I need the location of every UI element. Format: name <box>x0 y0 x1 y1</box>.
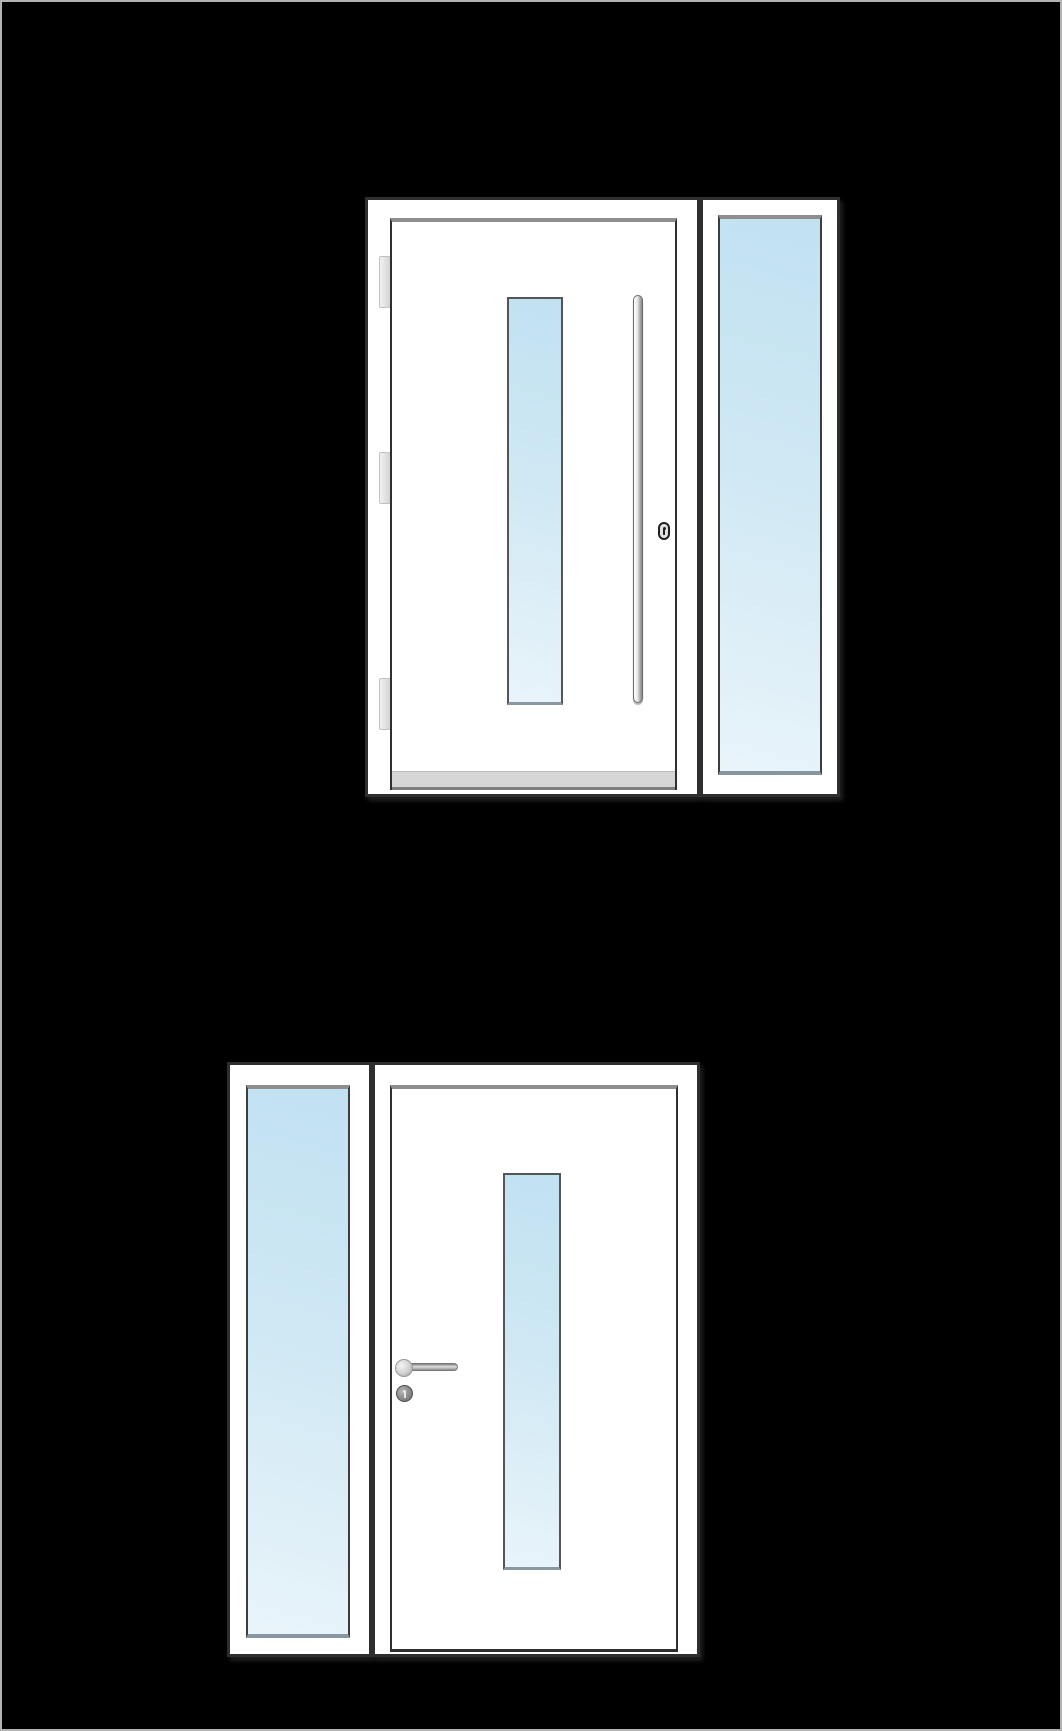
sidelight-frame-left <box>227 1062 372 1657</box>
lever-handle-rosette <box>395 1359 413 1377</box>
sidelight-frame-right <box>700 197 840 797</box>
door-leaf <box>390 218 677 790</box>
door-unit-exterior-figure <box>365 197 840 797</box>
door-frame <box>365 197 700 797</box>
door-unit-interior-figure <box>227 1062 700 1657</box>
sidelight-glass <box>246 1085 350 1638</box>
sidelight-glass <box>718 215 822 775</box>
bar-pull-handle <box>633 295 643 703</box>
keyhole-slot-icon <box>663 529 665 535</box>
keyhole-escutcheon <box>658 522 670 540</box>
door-glass-panel <box>503 1173 561 1570</box>
door-glass-panel <box>507 297 563 705</box>
keyhole-slot-icon <box>404 1392 406 1398</box>
door-leaf <box>390 1085 678 1652</box>
threshold-strip <box>392 771 675 790</box>
door-illustration-canvas <box>0 0 1062 1731</box>
door-frame <box>372 1062 700 1657</box>
cylinder-escutcheon <box>396 1385 413 1402</box>
